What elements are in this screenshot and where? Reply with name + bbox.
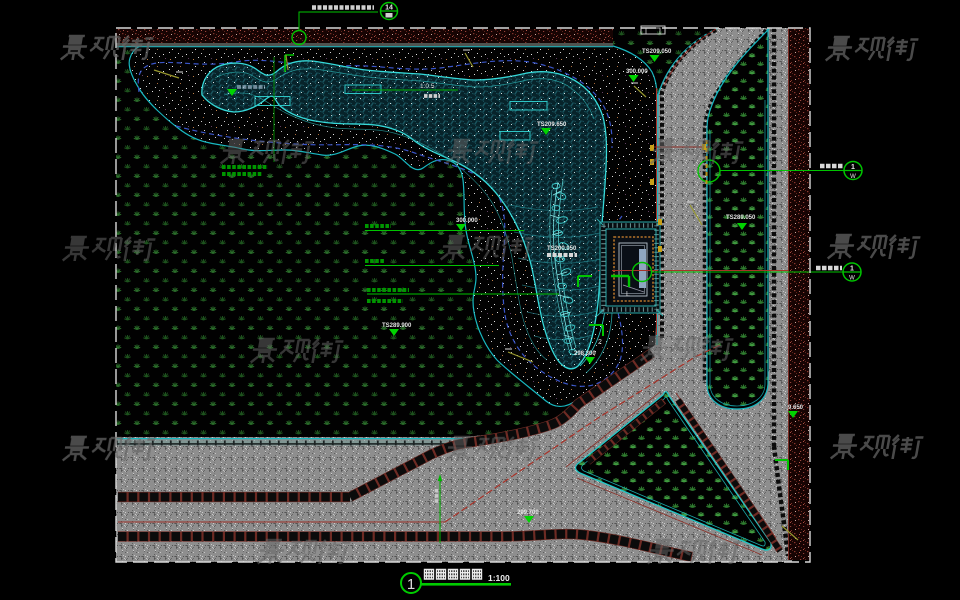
svg-text:1:0.5: 1:0.5	[420, 83, 435, 90]
svg-text:TS289.900: TS289.900	[382, 323, 412, 329]
svg-text:298.300: 298.300	[574, 351, 596, 357]
svg-text:14: 14	[385, 5, 393, 12]
svg-text:TS209.650: TS209.650	[537, 122, 567, 128]
svg-text:1: 1	[407, 576, 415, 593]
svg-text:300.000: 300.000	[626, 69, 648, 75]
svg-text:1: 1	[851, 164, 855, 171]
svg-text:1: 1	[850, 266, 854, 273]
svg-text:299.700: 299.700	[517, 510, 539, 516]
svg-text:W: W	[849, 276, 855, 282]
svg-text:300.000: 300.000	[456, 218, 478, 224]
svg-text:TS200.050: TS200.050	[547, 246, 577, 252]
svg-text:9.650: 9.650	[788, 405, 804, 411]
svg-text:2: 2	[598, 339, 602, 346]
svg-text:TS209.050: TS209.050	[642, 49, 672, 55]
svg-text:1:100: 1:100	[488, 573, 510, 583]
svg-text:TS289.050: TS289.050	[726, 215, 756, 221]
svg-text:W: W	[850, 174, 856, 180]
svg-text:L: L	[626, 291, 630, 298]
